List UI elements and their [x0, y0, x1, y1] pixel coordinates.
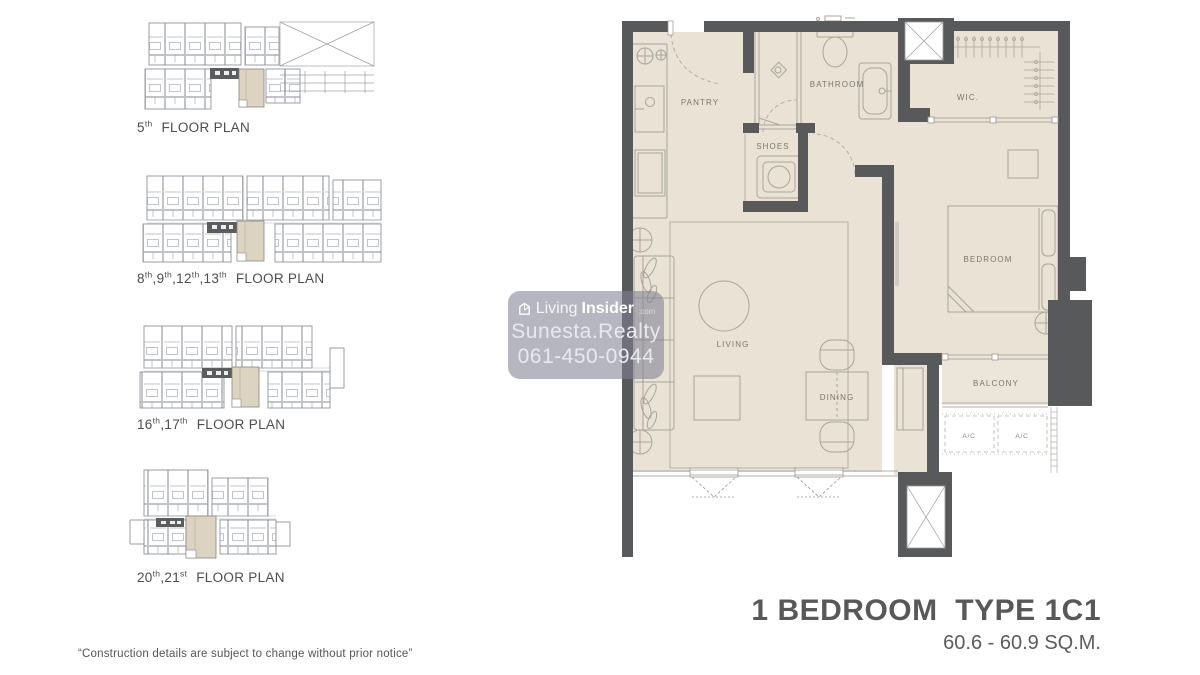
- thumbnail-floor-16-17: 16th,17thFLOOR PLAN: [122, 318, 347, 438]
- floor-number: 13: [204, 271, 220, 286]
- label-ac-left: A/C: [962, 433, 975, 440]
- caption-label: FLOOR PLAN: [162, 120, 251, 135]
- floor-suffix: th: [164, 270, 172, 280]
- floor-suffix: th: [219, 270, 227, 280]
- tv-panel: [895, 222, 899, 286]
- room-label-shoes: SHOES: [756, 142, 790, 151]
- corridor-core: [207, 222, 237, 233]
- brand-living: Living: [536, 300, 578, 318]
- watermark-agency: Sunesta.Realty: [508, 320, 664, 344]
- elevator-shaft-top: [905, 22, 943, 60]
- corridor-core: [210, 68, 239, 79]
- room-label-balcony: BALCONY: [973, 379, 1019, 388]
- thumbnail-floor-5-drawing: [125, 13, 377, 113]
- building-blocks: [145, 23, 300, 109]
- floor-plan-caption: 16th,17thFLOOR PLAN: [137, 417, 285, 432]
- window-wall: [633, 468, 898, 497]
- elevator-shaft-bottom: [907, 486, 945, 548]
- living-insider-logo-icon: [517, 302, 532, 317]
- caption-label: FLOOR PLAN: [236, 271, 325, 286]
- brand-insider: Insider: [582, 300, 634, 318]
- thumbnail-floor-5: 5thFLOOR PLAN: [125, 13, 377, 143]
- floor-number: 16: [137, 417, 153, 432]
- label-ac-right: A/C: [1015, 433, 1028, 440]
- ac-units: [942, 414, 1050, 454]
- room-label-bathroom: BATHROOM: [810, 80, 864, 89]
- service-ladder: [1051, 407, 1057, 473]
- floor-number: 21: [164, 570, 180, 585]
- floor-number: 17: [164, 417, 180, 432]
- floor-number: 20: [137, 570, 153, 585]
- room-label-bedroom: BEDROOM: [963, 255, 1012, 264]
- corridor-core: [156, 518, 184, 527]
- room-label-pantry: PANTRY: [681, 98, 719, 107]
- floor-suffix: th: [180, 416, 188, 426]
- floor-suffix: st: [180, 569, 187, 579]
- caption-label: FLOOR PLAN: [197, 417, 286, 432]
- unit-title-block: 1 BEDROOM TYPE 1C1 60.6 - 60.9 SQ.M.: [751, 594, 1101, 655]
- floor-plan-caption: 20th,21stFLOOR PLAN: [137, 570, 285, 585]
- disclaimer-note: “Construction details are subject to cha…: [78, 648, 413, 660]
- room-label-wic: WIC.: [957, 93, 979, 102]
- floor-number: 8: [137, 271, 145, 286]
- room-label-living: LIVING: [717, 340, 750, 349]
- entrance-door-leaf: [668, 21, 673, 35]
- watermark-brand: LivingInsider.com: [508, 300, 664, 318]
- thumbnail-floor-16-17-drawing: [122, 318, 347, 411]
- caption-label: FLOOR PLAN: [196, 570, 285, 585]
- watermark-phone: 061-450-0944: [508, 345, 664, 369]
- corridor-core: [202, 368, 232, 378]
- floor-number: 12: [176, 271, 192, 286]
- highlighted-unit: [237, 221, 264, 261]
- room-label-dining: DINING: [820, 393, 855, 402]
- entrance-opening: [668, 21, 704, 32]
- thumbnail-floor-8-13: 8th,9th,12th,13thFLOOR PLAN: [123, 168, 385, 293]
- highlighted-unit: [239, 69, 264, 107]
- highlighted-unit: [232, 367, 259, 407]
- watermark: LivingInsider.com Sunesta.Realty 061-450…: [508, 291, 664, 379]
- floor-plan-caption: 8th,9th,12th,13thFLOOR PLAN: [137, 271, 324, 286]
- brand-tld: .com: [638, 307, 655, 316]
- unit-type-title: 1 BEDROOM TYPE 1C1: [751, 594, 1101, 628]
- floor-suffix: th: [145, 270, 153, 280]
- floor-plan-sheet: 5thFLOOR PLAN: [0, 0, 1200, 675]
- thumbnail-floor-20-21-drawing: [128, 462, 303, 562]
- thumbnail-floor-8-13-drawing: [123, 168, 385, 266]
- thumbnail-floor-20-21: 20th,21stFLOOR PLAN: [128, 462, 308, 590]
- floor-suffix: th: [145, 119, 153, 129]
- unit-area: 60.6 - 60.9 SQ.M.: [751, 632, 1101, 655]
- main-unit-plan: PANTRY BATHROOM SHOES WIC. LIVING DINING…: [612, 10, 1092, 568]
- floor-number: 5: [137, 120, 145, 135]
- highlighted-unit: [186, 516, 216, 558]
- floor-plan-caption: 5thFLOOR PLAN: [137, 120, 250, 135]
